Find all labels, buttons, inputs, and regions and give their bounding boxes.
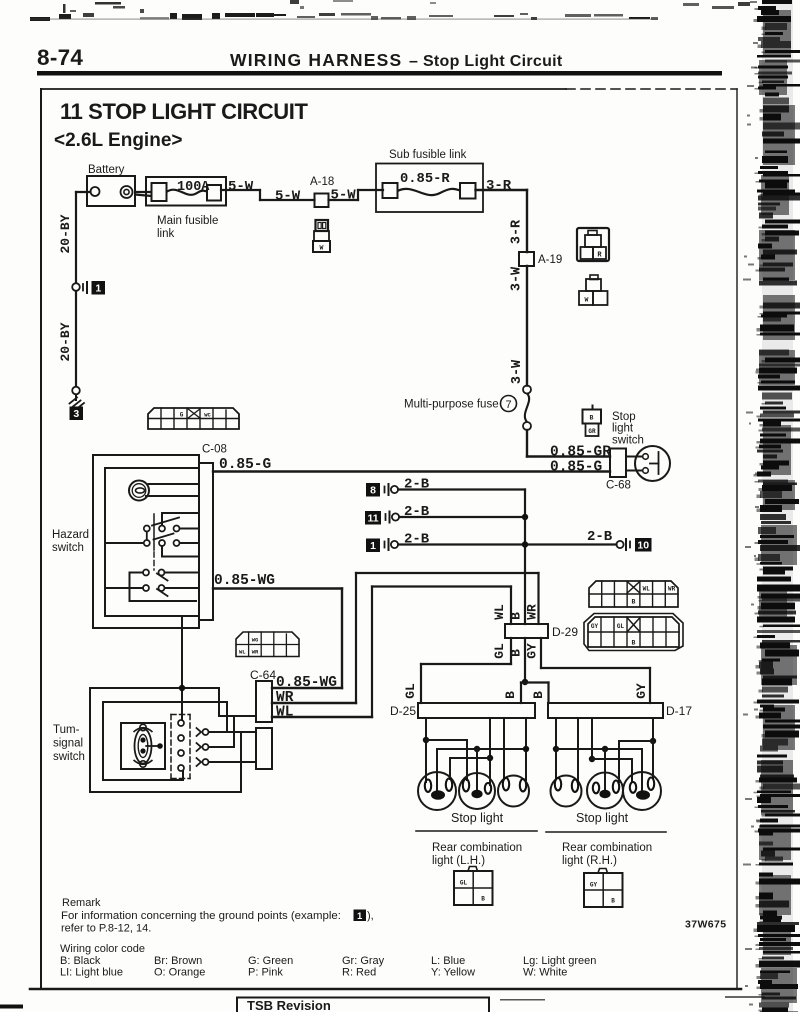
svg-text:B: B (531, 691, 546, 699)
svg-text:D-25: D-25 (390, 704, 416, 718)
svg-text:W: W (320, 245, 324, 252)
svg-text:B: B (632, 640, 636, 647)
svg-text:37W675: 37W675 (685, 919, 727, 931)
svg-text:Wiring color code: Wiring color code (60, 943, 145, 955)
svg-text:3-W: 3-W (510, 359, 525, 384)
svg-text:R: Red: R: Red (342, 967, 376, 979)
svg-text:Sub fusible link: Sub fusible link (389, 149, 467, 161)
svg-text:0.85-G: 0.85-G (550, 460, 602, 476)
svg-text:WIRING HARNESS: WIRING HARNESS (230, 50, 402, 70)
svg-text:B: B (632, 599, 636, 606)
svg-text:refer to P.8-12, 14.: refer to P.8-12, 14. (61, 923, 151, 935)
svg-text:B: B (611, 898, 615, 905)
svg-text:C-08: C-08 (202, 444, 227, 456)
svg-text:Remark: Remark (62, 897, 101, 909)
svg-text:1: 1 (370, 540, 376, 552)
svg-text:WC: WC (204, 412, 211, 419)
svg-text:Rear combination: Rear combination (432, 842, 522, 854)
svg-text:G: Green: G: Green (248, 955, 293, 967)
svg-text:Stop light: Stop light (451, 811, 504, 825)
svg-text:B: B (503, 691, 518, 699)
svg-text:light (R.H.): light (R.H.) (562, 855, 617, 867)
svg-text:Stop light: Stop light (576, 811, 629, 825)
svg-text:Battery: Battery (88, 164, 125, 176)
svg-text:1: 1 (357, 911, 363, 922)
svg-text:B: B (481, 896, 485, 903)
svg-text:WG: WG (252, 637, 259, 644)
svg-text:A-19: A-19 (538, 254, 562, 266)
svg-text:WR: WR (668, 586, 676, 593)
svg-text:3-R: 3-R (510, 219, 525, 244)
svg-text:0.85-WG: 0.85-WG (214, 573, 275, 589)
svg-text:B: Black: B: Black (60, 955, 101, 967)
svg-text:GL: GL (617, 623, 625, 630)
svg-text:GR: GR (588, 428, 596, 435)
svg-text:<2.6L Engine>: <2.6L Engine> (54, 130, 182, 151)
svg-text:link: link (157, 228, 175, 240)
svg-text:3-W: 3-W (510, 266, 525, 291)
svg-text:8-74: 8-74 (37, 45, 83, 70)
svg-text:L: Blue: L: Blue (431, 955, 465, 967)
svg-text:G: G (180, 412, 184, 419)
svg-text:3: 3 (73, 408, 79, 420)
svg-text:GY: GY (525, 643, 540, 659)
svg-text:),: ), (367, 910, 374, 922)
svg-text:GL: GL (460, 880, 468, 887)
svg-text:LI: Light blue: LI: Light blue (60, 967, 123, 979)
svg-text:Stop: Stop (612, 411, 636, 423)
svg-text:D-17: D-17 (666, 704, 692, 718)
svg-text:A-18: A-18 (310, 176, 334, 188)
svg-text:light: light (612, 423, 634, 435)
svg-text:Multi-purpose fuse: Multi-purpose fuse (404, 399, 499, 411)
svg-text:Gr: Gray: Gr: Gray (342, 955, 385, 967)
svg-text:3-R: 3-R (486, 178, 512, 194)
svg-text:0.85-GR: 0.85-GR (550, 445, 611, 461)
svg-text:B: B (509, 612, 524, 620)
svg-text:C-64: C-64 (250, 668, 276, 682)
svg-text:Br: Brown: Br: Brown (154, 955, 202, 967)
svg-text:switch: switch (612, 435, 644, 447)
svg-text:P: Pink: P: Pink (248, 967, 283, 979)
svg-text:Rear combination: Rear combination (562, 842, 652, 854)
svg-text:TSB Revision: TSB Revision (247, 998, 331, 1012)
svg-text:W: White: W: White (523, 967, 567, 979)
svg-text:5-W: 5-W (228, 179, 254, 195)
svg-text:11: 11 (367, 513, 378, 525)
svg-text:WR: WR (252, 649, 259, 656)
svg-text:GL: GL (492, 643, 507, 659)
svg-text:D-29: D-29 (552, 625, 578, 639)
svg-text:switch: switch (52, 542, 84, 554)
svg-text:GY: GY (590, 882, 598, 889)
svg-text:WR: WR (525, 604, 540, 620)
svg-text:Main fusible: Main fusible (157, 215, 218, 227)
svg-text:GL: GL (403, 683, 418, 699)
svg-text:20-BY: 20-BY (58, 322, 73, 361)
svg-text:WL: WL (492, 604, 507, 620)
svg-text:20-BY: 20-BY (58, 214, 73, 253)
svg-text:11 STOP LIGHT CIRCUIT: 11 STOP LIGHT CIRCUIT (60, 99, 308, 124)
svg-text:B: B (590, 415, 594, 422)
svg-text:– Stop Light Circuit: – Stop Light Circuit (409, 53, 563, 70)
svg-text:Lg: Light green: Lg: Light green (523, 955, 596, 967)
svg-text:switch: switch (53, 751, 85, 763)
svg-text:Hazard: Hazard (52, 529, 89, 541)
svg-text:0.85-R: 0.85-R (400, 172, 450, 187)
svg-text:5-W: 5-W (275, 189, 301, 205)
svg-text:Tum-: Tum- (53, 724, 80, 736)
svg-text:C-68: C-68 (606, 480, 631, 492)
svg-text:2-B: 2-B (587, 529, 613, 545)
svg-text:WL: WL (239, 649, 246, 656)
svg-text:10: 10 (637, 540, 649, 552)
svg-text:0.85-G: 0.85-G (219, 457, 271, 473)
svg-text:7: 7 (505, 399, 511, 411)
svg-text:1: 1 (95, 283, 101, 295)
svg-text:light (L.H.): light (L.H.) (432, 855, 485, 867)
svg-text:8: 8 (370, 485, 376, 497)
svg-text:Y: Yellow: Y: Yellow (431, 967, 475, 979)
svg-text:WL: WL (643, 586, 651, 593)
svg-text:W: W (585, 297, 589, 304)
svg-text:signal: signal (53, 738, 83, 750)
svg-text:For information concerning the: For information concerning the ground po… (61, 910, 341, 922)
svg-text:GY: GY (591, 623, 599, 630)
svg-text:GY: GY (634, 683, 649, 699)
svg-text:O: Orange: O: Orange (154, 967, 205, 979)
